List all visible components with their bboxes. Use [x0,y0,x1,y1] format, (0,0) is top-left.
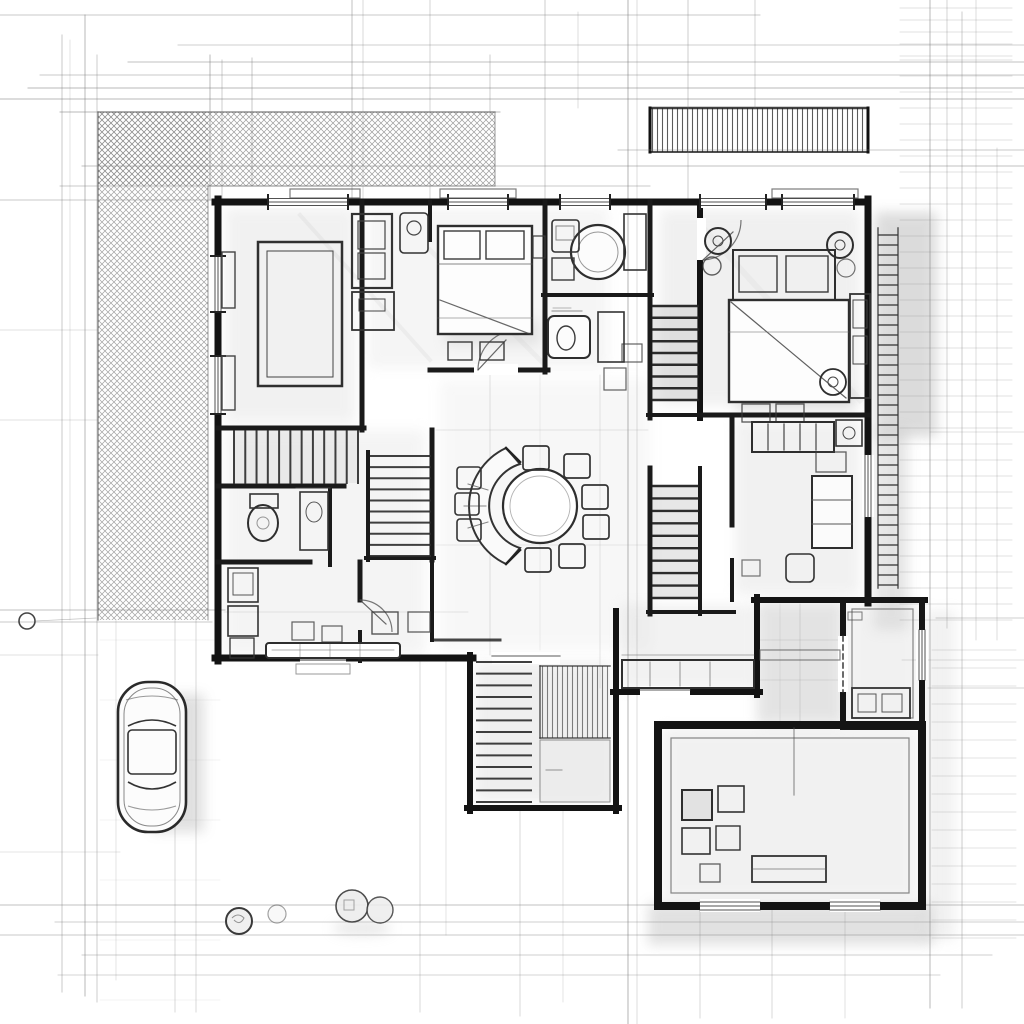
bush [226,908,252,934]
floor-plan-canvas [0,0,1024,1024]
sketch-page [0,0,1024,1024]
stair-wash [653,486,698,598]
ramp-stripes [540,666,610,738]
bush [367,897,393,923]
wall-shadow-hatch [878,228,898,588]
sofa [812,476,852,548]
dining-table [503,469,577,543]
bush [336,890,368,922]
room-wash-corridor [620,604,755,689]
stair-landing [540,740,610,802]
patio-crosshatch-left [98,112,208,620]
door-gap [474,364,518,375]
bush-small [268,905,286,923]
stair-wash [234,431,358,483]
washer [548,316,590,358]
lower-room-table [682,790,712,820]
deck-stripes [650,108,868,152]
bench [266,643,400,658]
room-wash-left-room [225,208,355,423]
